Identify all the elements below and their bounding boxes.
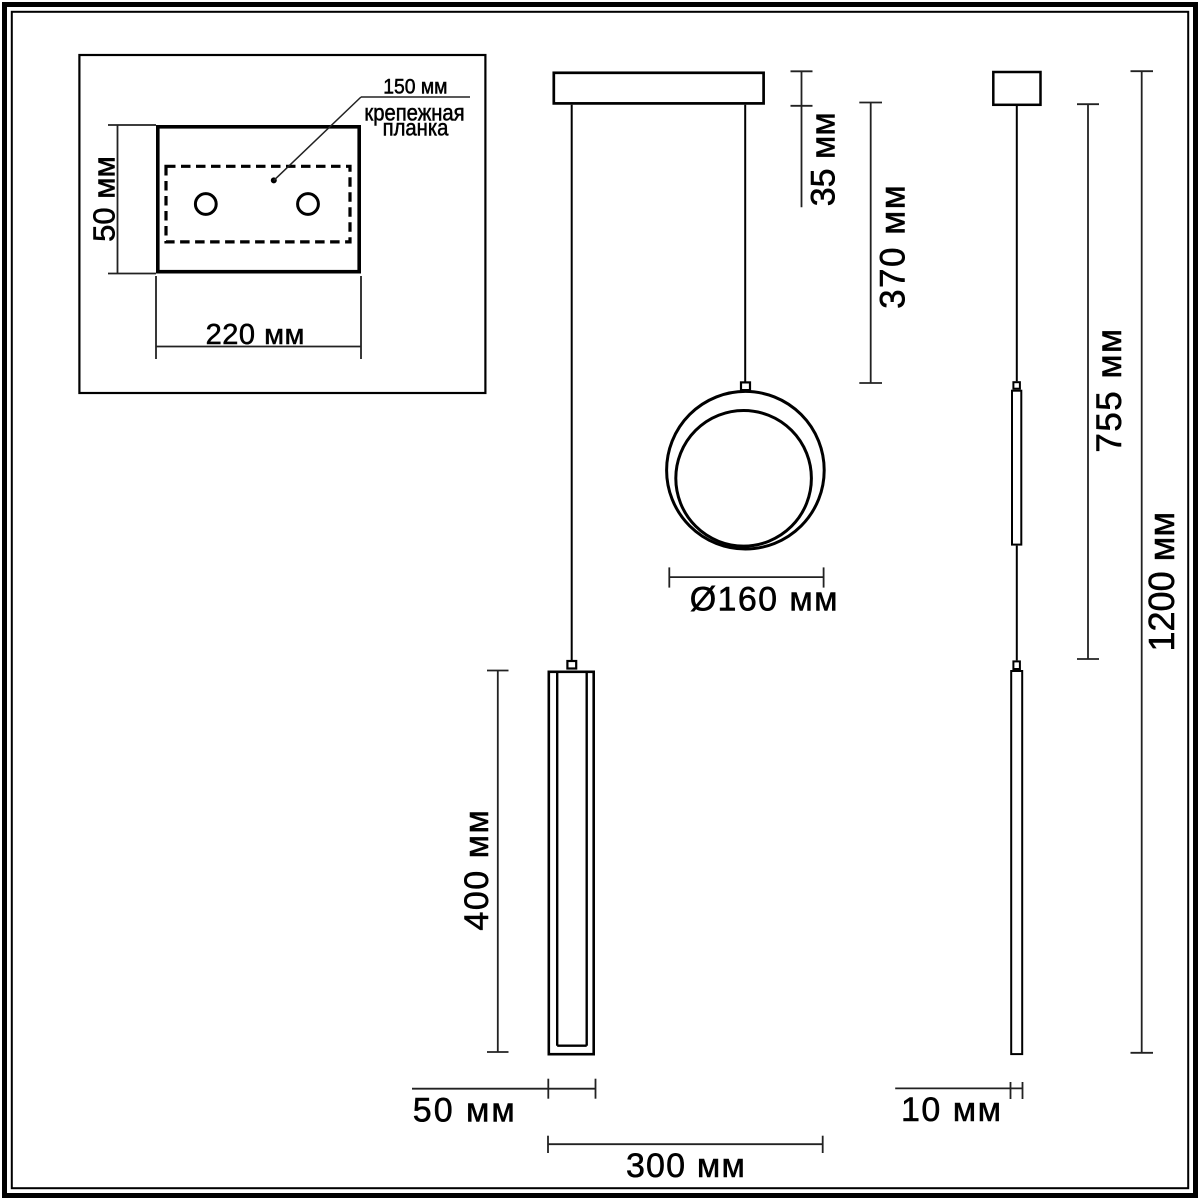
- svg-text:300 мм: 300 мм: [626, 1147, 746, 1185]
- svg-text:10 мм: 10 мм: [901, 1091, 1003, 1129]
- svg-text:400 мм: 400 мм: [458, 809, 496, 931]
- svg-text:планка: планка: [383, 114, 450, 141]
- svg-text:50 мм: 50 мм: [413, 1091, 517, 1129]
- svg-text:370 мм: 370 мм: [874, 184, 913, 309]
- svg-text:35 мм: 35 мм: [805, 112, 843, 206]
- svg-text:Ø160 мм: Ø160 мм: [690, 581, 839, 619]
- svg-text:50 мм: 50 мм: [87, 156, 122, 242]
- svg-text:220 мм: 220 мм: [206, 319, 305, 351]
- svg-text:755 мм: 755 мм: [1090, 327, 1129, 452]
- svg-text:1200 мм: 1200 мм: [1141, 512, 1182, 652]
- svg-text:150 мм: 150 мм: [383, 75, 447, 99]
